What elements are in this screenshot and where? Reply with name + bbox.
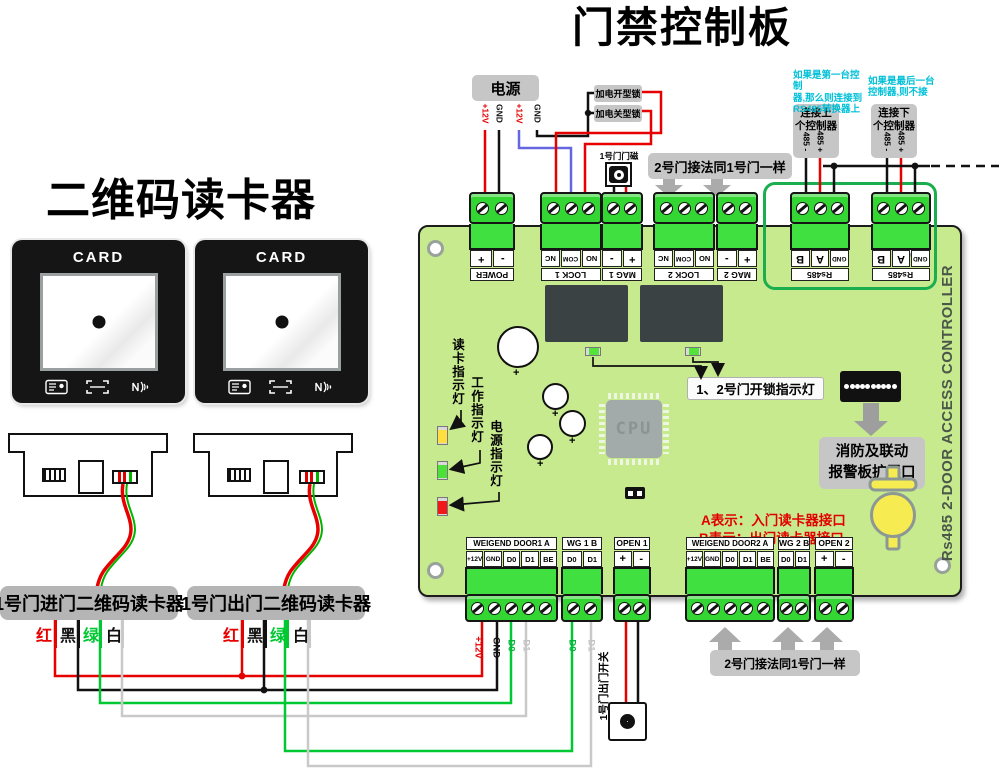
terminal-cell: NC (654, 250, 673, 267)
terminal-cell: A (892, 250, 911, 267)
terminal-screw (912, 202, 925, 215)
terminal-plug (777, 594, 811, 622)
wire-color-label: 红 (223, 622, 239, 646)
terminal-body (540, 224, 602, 250)
terminal-strip-weigend-door2-a: WEIGEND DOOR2 A+12VGNDD0D1BE (685, 537, 775, 622)
terminal-body (613, 567, 651, 594)
door1-mag-label: 1号门门磁 (595, 150, 643, 162)
terminal-cell: NO (695, 250, 714, 267)
arrow-power-led (452, 492, 499, 505)
terminal-name: WEIGEND DOOR2 A (686, 537, 774, 550)
terminal-plug (685, 594, 775, 622)
wire-color-bar (286, 620, 290, 648)
wire-color-label: 绿 (83, 622, 99, 646)
rs485-last-note: 如果是最后一台 控制器,则不接 (868, 76, 938, 99)
terminal-screw (895, 202, 908, 215)
terminal-name: MAG 2 (717, 268, 757, 281)
terminal-screw (633, 602, 646, 615)
terminal-screw (836, 602, 849, 615)
terminal-screw (582, 202, 595, 215)
terminal-cell: NO (582, 250, 601, 267)
terminal-plug (613, 594, 651, 622)
terminal-plug (601, 192, 643, 224)
terminal-cell: +12V (466, 551, 483, 567)
terminal-screw (695, 202, 708, 215)
reader1-name-label: 1号门进门二维码读卡器 (0, 586, 178, 620)
terminal-name: POWER (470, 268, 514, 281)
terminal-strip-rs485: BAGNDRs485 (871, 192, 931, 281)
terminal-cells: -+ (601, 250, 643, 267)
wire-color-bar (77, 620, 81, 648)
exit-switch-label: 1号门出门开关 (596, 638, 608, 734)
wire-color-bar (54, 620, 58, 648)
terminal-plug (716, 192, 758, 224)
rs485-plus-pin: 485 + (815, 126, 826, 158)
wire-label-d0: D0 (567, 629, 578, 663)
terminal-plug (540, 192, 602, 224)
terminal-body (469, 224, 515, 250)
terminal-screw (740, 602, 753, 615)
junction-dot (585, 110, 591, 116)
bus-dot (831, 163, 838, 170)
terminal-cell: - (835, 551, 854, 567)
terminal-name: WEIGEND DOOR1 A (466, 537, 557, 550)
wire-color-bar (241, 620, 245, 648)
wire-label-d1: D1 (521, 629, 532, 663)
terminal-screw (488, 602, 501, 615)
terminal-cell: D1 (795, 551, 811, 567)
terminal-cell: GND (704, 551, 721, 567)
terminal-screw (565, 202, 578, 215)
power-pin-gnd: GND (494, 96, 505, 132)
terminal-screw (522, 602, 535, 615)
terminal-cells: +12VGNDD0D1BE (685, 551, 775, 567)
wire-reader1-white (122, 606, 526, 716)
terminal-body (685, 567, 775, 594)
terminal-body (716, 224, 758, 250)
terminal-cell: D0 (562, 551, 582, 567)
terminal-screw (877, 202, 890, 215)
terminal-cell: A (811, 250, 830, 267)
terminal-screw (660, 202, 673, 215)
wire-color-label: 白 (293, 622, 309, 646)
reader2-name-label: 1号门出门二维码读卡器 (187, 586, 365, 620)
terminal-cells: D0D1 (777, 551, 811, 567)
door2-same-note-top: 2号门接法同1号门一样 (648, 153, 792, 179)
wire-color-label: 红 (36, 622, 52, 646)
terminal-body (790, 224, 850, 250)
terminal-body (601, 224, 643, 250)
rs485-minus-pin: 485 - (801, 126, 812, 158)
terminal-name: LOCK 1 (541, 268, 601, 281)
terminal-screw (722, 202, 735, 215)
terminal-name: MAG 1 (602, 268, 642, 281)
rs485-plus-pin: 485 + (896, 126, 907, 158)
buzzer (870, 467, 916, 549)
terminal-name: Rs485 (872, 268, 930, 281)
terminal-cells: BAGND (790, 250, 850, 267)
line-unlock-led1 (593, 357, 701, 368)
power-pin-12v: +12V (480, 96, 491, 132)
terminal-strip-open-1: OPEN 1+- (613, 537, 651, 622)
terminal-cell: GND (911, 250, 930, 267)
terminal-screw (707, 602, 720, 615)
terminal-body (871, 224, 931, 250)
terminal-strip-lock-1: NCCOMNOLOCK 1 (540, 192, 602, 281)
terminal-cell: D1 (521, 551, 538, 567)
terminal-cells: +- (814, 551, 854, 567)
terminal-screw (814, 202, 827, 215)
terminal-name: WG 1 B (562, 537, 602, 550)
wire-label-d1: D1 (586, 629, 597, 663)
terminal-cell: - (493, 250, 515, 267)
wire-label-gnd: GND (491, 631, 502, 665)
terminal-cell: +12V (686, 551, 703, 567)
terminal-body (561, 567, 603, 594)
terminal-cell: NC (541, 250, 560, 267)
door2-same-note-bottom: 2号门接法同1号门一样 (710, 650, 860, 676)
power-pin-12v: +12V (514, 96, 525, 132)
terminal-cell: + (470, 250, 492, 267)
terminal-screw (819, 602, 832, 615)
terminal-name: LOCK 2 (654, 268, 714, 281)
rs485-first-note: 如果是第一台控制 器,那么则连接到 RS485转换器上 (793, 70, 865, 116)
wire-color-label: 白 (106, 622, 122, 646)
terminal-strip-lock-2: NCCOMNOLOCK 2 (653, 192, 715, 281)
door1-exit-button (608, 702, 647, 741)
terminal-body (814, 567, 854, 594)
terminal-cell: D1 (583, 551, 603, 567)
wire-color-bar (99, 620, 103, 648)
page-title: 门禁控制板 (572, 0, 792, 55)
terminal-cell: GND (484, 551, 501, 567)
arrow-work-led (452, 450, 480, 469)
terminal-cells: BAGND (871, 250, 931, 267)
power-on-close-lock-box: 加电关型锁 (594, 105, 642, 122)
arrow-unlock-1 (694, 366, 708, 380)
terminal-cell: - (633, 551, 651, 567)
terminal-cell: + (738, 250, 758, 267)
terminal-screw (618, 602, 631, 615)
terminal-plug (561, 594, 603, 622)
terminal-plug (465, 594, 558, 622)
terminal-screw (724, 602, 737, 615)
terminal-screw (795, 602, 808, 615)
terminal-screw (624, 202, 637, 215)
wire-back2-red (284, 484, 318, 588)
terminal-screw (739, 202, 752, 215)
terminal-cell: B (791, 250, 810, 267)
wire-back1-red (97, 484, 131, 588)
terminal-strip-mag-2: -+MAG 2 (716, 192, 758, 281)
connect-next-box: 连接下 个控制器 (871, 104, 917, 158)
terminal-strip-rs485: BAGNDRs485 (790, 192, 850, 281)
terminal-strip-weigend-door1-a: WEIGEND DOOR1 A+12VGNDD0D1BE (465, 537, 558, 622)
terminal-plug (871, 192, 931, 224)
wire-reader2-white (308, 606, 591, 766)
terminal-screw (584, 602, 597, 615)
terminal-cells: -+ (716, 250, 758, 267)
terminal-cell: + (614, 551, 632, 567)
terminal-screw (780, 602, 793, 615)
wire-color-label: 绿 (270, 622, 286, 646)
terminal-cell: COM (674, 250, 693, 267)
terminal-plug (469, 192, 515, 224)
terminal-cell: BE (757, 551, 774, 567)
junction-dot-red (239, 673, 246, 680)
arrow-unlock-2 (711, 363, 725, 377)
terminal-cells: +- (613, 551, 651, 567)
terminal-strip-wg-2-b: WG 2 BD0D1 (777, 537, 811, 622)
terminal-cell: BE (540, 551, 557, 567)
terminal-cell: D1 (739, 551, 756, 567)
rs485-minus-pin: 485 - (882, 126, 893, 158)
terminal-strip-power: +-POWER (469, 192, 515, 281)
power-on-open-lock-box: 加电开型锁 (594, 85, 642, 102)
terminal-plug (790, 192, 850, 224)
wire-color-bar (264, 620, 268, 648)
terminal-screw (678, 202, 691, 215)
terminal-strip-mag-1: -+MAG 1 (601, 192, 643, 281)
terminal-screw (691, 602, 704, 615)
terminal-strip-open-2: OPEN 2+- (814, 537, 854, 622)
terminal-cell: D0 (503, 551, 520, 567)
terminal-plug (814, 594, 854, 622)
terminal-cell: COM (561, 250, 580, 267)
terminal-screw (547, 202, 560, 215)
terminal-screw (471, 602, 484, 615)
terminal-cell: - (717, 250, 737, 267)
terminal-screw (567, 602, 580, 615)
terminal-name: WG 2 B (778, 537, 810, 550)
wire-color-label: 黑 (60, 622, 76, 646)
terminal-cell: + (815, 551, 834, 567)
arrow-card-led (452, 410, 461, 428)
terminal-screw (757, 602, 770, 615)
terminal-screw (539, 602, 552, 615)
terminal-cells: +12VGNDD0D1BE (465, 551, 558, 567)
terminal-name: Rs485 (791, 268, 849, 281)
terminal-cell: + (623, 250, 643, 267)
terminal-strip-wg-1-b: WG 1 BD0D1 (561, 537, 603, 622)
terminal-cells: NCCOMNO (653, 250, 715, 267)
bus-dot (912, 163, 919, 170)
terminal-body (465, 567, 558, 594)
terminal-body (777, 567, 811, 594)
terminal-cell: GND (830, 250, 849, 267)
junction-dot-black (261, 687, 268, 694)
terminal-cell: B (872, 250, 891, 267)
terminal-screw (831, 202, 844, 215)
arrow-fire-expansion (854, 403, 888, 436)
wire-label-12v: +12V (473, 631, 484, 665)
door1-mag-contact (605, 162, 632, 187)
diagram-canvas: 门禁控制板 二维码读卡器 CARD CARD 1号门进门二维码读卡器 1号门出门… (0, 0, 1000, 775)
terminal-plug (653, 192, 715, 224)
wire-label-d0: D0 (506, 629, 517, 663)
terminal-cell: D0 (778, 551, 794, 567)
terminal-screw (505, 602, 518, 615)
terminal-screw (607, 202, 620, 215)
terminal-name: OPEN 2 (815, 537, 853, 550)
terminal-cells: NCCOMNO (540, 250, 602, 267)
reader-section-title: 二维码读卡器 (46, 164, 316, 228)
terminal-name: OPEN 1 (614, 537, 650, 550)
power-pin-gnd: GND (532, 96, 543, 132)
terminal-cell: D0 (722, 551, 739, 567)
terminal-screw (495, 202, 508, 215)
wire-reader1-green (100, 606, 511, 703)
terminal-screw (796, 202, 809, 215)
terminal-cells: +- (469, 250, 515, 267)
wire-color-label: 黑 (247, 622, 263, 646)
terminal-screw (476, 202, 489, 215)
terminal-cell: - (602, 250, 622, 267)
terminal-cells: D0D1 (561, 551, 603, 567)
terminal-body (653, 224, 715, 250)
